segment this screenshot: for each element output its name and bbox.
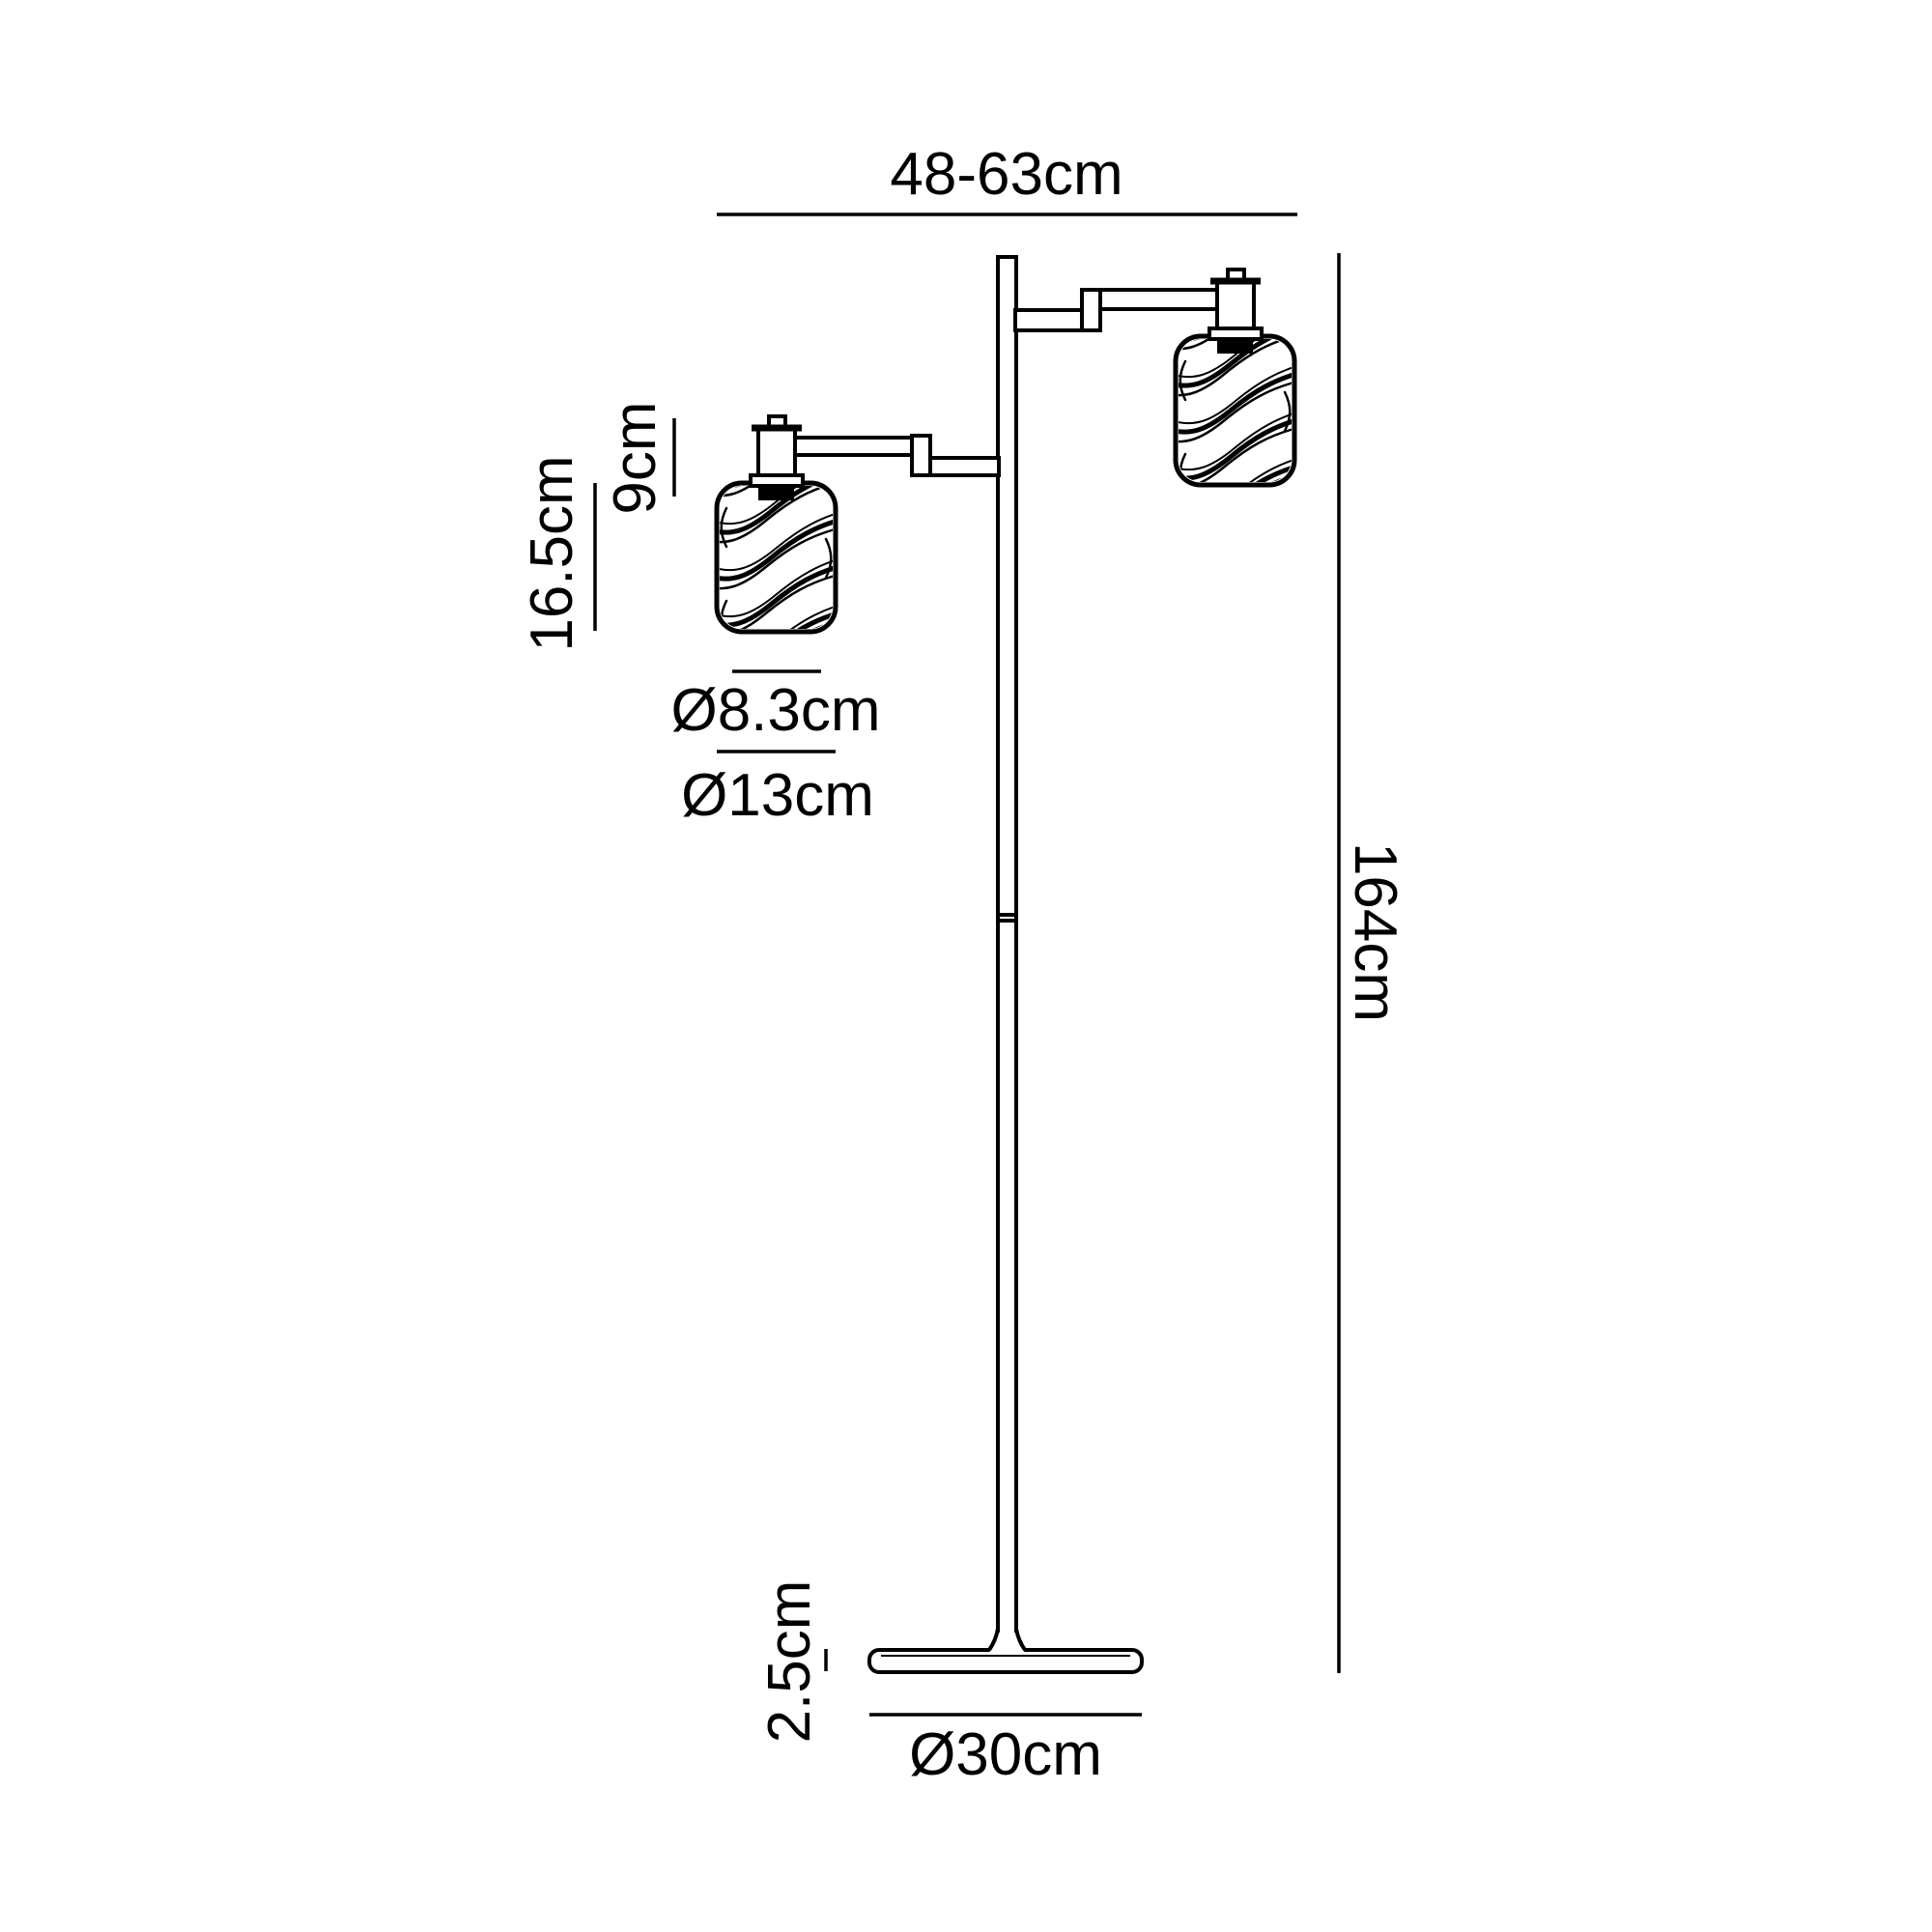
lamp-base [869, 1650, 1142, 1672]
label-shade-diameter: Ø13cm [681, 766, 874, 826]
label-lampholder-height: 9cm [606, 401, 666, 514]
label-shade-top-diameter: Ø8.3cm [670, 681, 880, 741]
right-swing-arm [1015, 290, 1219, 330]
lamp-line-drawing [0, 0, 1932, 1932]
left-swing-arm [794, 436, 999, 475]
label-shade-height: 16.5cm [523, 455, 582, 651]
label-base-height: 2.5cm [760, 1580, 820, 1744]
label-overall-width: 48-63cm [890, 145, 1122, 205]
floor-lamp-dimension-diagram: 48-63cm 164cm 9cm 16.5cm Ø8.3cm Ø13cm 2.… [0, 0, 1932, 1932]
label-base-diameter: Ø30cm [909, 1725, 1102, 1785]
label-overall-height: 164cm [1345, 842, 1405, 1022]
